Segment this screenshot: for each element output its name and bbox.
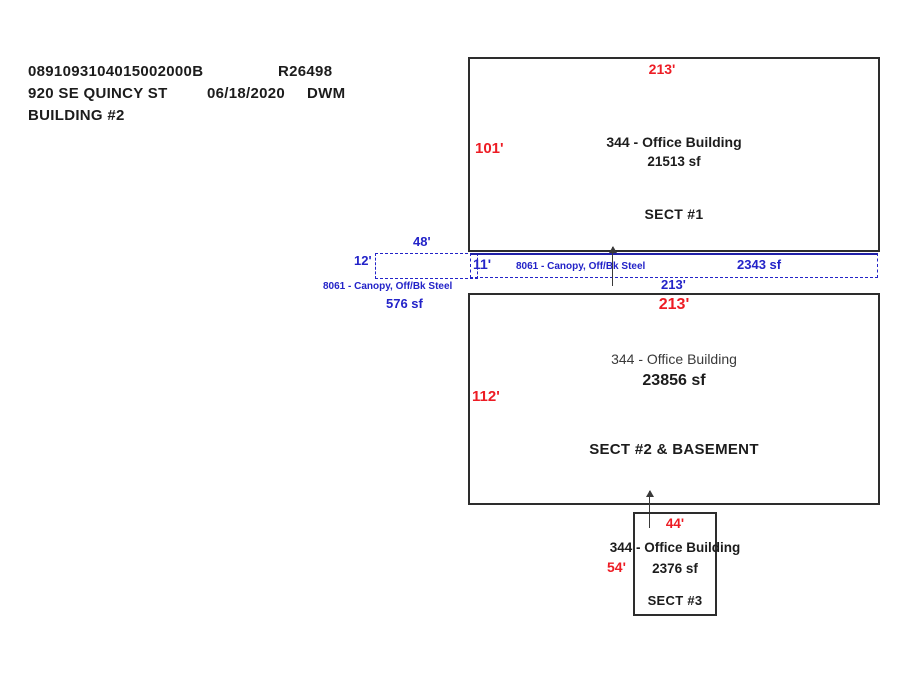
- header-line-3: BUILDING #2: [28, 107, 428, 129]
- sketch-header: 0891093104015002000B R26498 920 SE QUINC…: [28, 63, 428, 129]
- canopy-strip-height-dimension: 11': [473, 256, 491, 272]
- canopy-strip-area: 2343 sf: [737, 257, 781, 272]
- site-address: 920 SE QUINCY ST: [28, 85, 168, 102]
- sketch-date: 06/18/2020: [207, 85, 285, 102]
- sect2-use-label: 344 - Office Building: [470, 351, 878, 367]
- sect3-area: 2376 sf: [635, 561, 715, 576]
- canopy-strip-outline: 11' 8061 - Canopy, Off/Bk Steel 2343 sf: [470, 253, 878, 278]
- appraiser-initials: DWM: [307, 85, 345, 102]
- roll-number: R26498: [278, 63, 332, 80]
- sect1-top-dimension: 213': [446, 61, 878, 77]
- building-number-label: BUILDING #2: [28, 107, 125, 124]
- arrow-up-icon: [646, 490, 654, 497]
- building-sketch-canvas: 0891093104015002000B R26498 920 SE QUINC…: [0, 0, 900, 675]
- sect1-area: 21513 sf: [470, 154, 878, 169]
- header-line-1: 0891093104015002000B R26498: [28, 63, 428, 85]
- canopy-small-area: 576 sf: [386, 296, 423, 311]
- sect2-area: 23856 sf: [470, 372, 878, 390]
- sect3-name: SECT #3: [635, 593, 715, 608]
- header-line-2: 920 SE QUINCY ST 06/18/2020 DWM: [28, 85, 428, 107]
- sect3-use-label: 344 - Office Building: [610, 540, 741, 555]
- sect2-left-dimension: 112': [472, 388, 500, 405]
- parcel-id: 0891093104015002000B: [28, 63, 203, 80]
- sect3-outline: 44' 54' 344 - Office Building 2376 sf SE…: [633, 512, 717, 616]
- arrow-up-icon: [609, 246, 617, 253]
- sect1-name: SECT #1: [470, 206, 878, 222]
- sect3-top-dimension: 44': [635, 516, 715, 531]
- sect2-top-dimension: 213': [470, 296, 878, 314]
- canopy-small-left-dimension: 12': [354, 253, 372, 268]
- sect2-name: SECT #2 & BASEMENT: [470, 441, 878, 458]
- canopy-strip-bottom-dimension: 213': [661, 277, 686, 292]
- canopy-small-outline: [375, 253, 478, 279]
- canopy-small-top-dimension: 48': [413, 234, 431, 249]
- canopy-strip-use-label: 8061 - Canopy, Off/Bk Steel: [516, 261, 645, 272]
- sect3-left-dimension: 54': [607, 559, 626, 575]
- sect1-use-label: 344 - Office Building: [470, 134, 878, 150]
- sect1-outline: 213' 101' 344 - Office Building 21513 sf…: [468, 57, 880, 252]
- sect2-outline: 213' 112' 344 - Office Building 23856 sf…: [468, 293, 880, 505]
- canopy-small-use-label: 8061 - Canopy, Off/Bk Steel: [323, 281, 452, 292]
- canopy-dimension-arrow: [612, 247, 613, 286]
